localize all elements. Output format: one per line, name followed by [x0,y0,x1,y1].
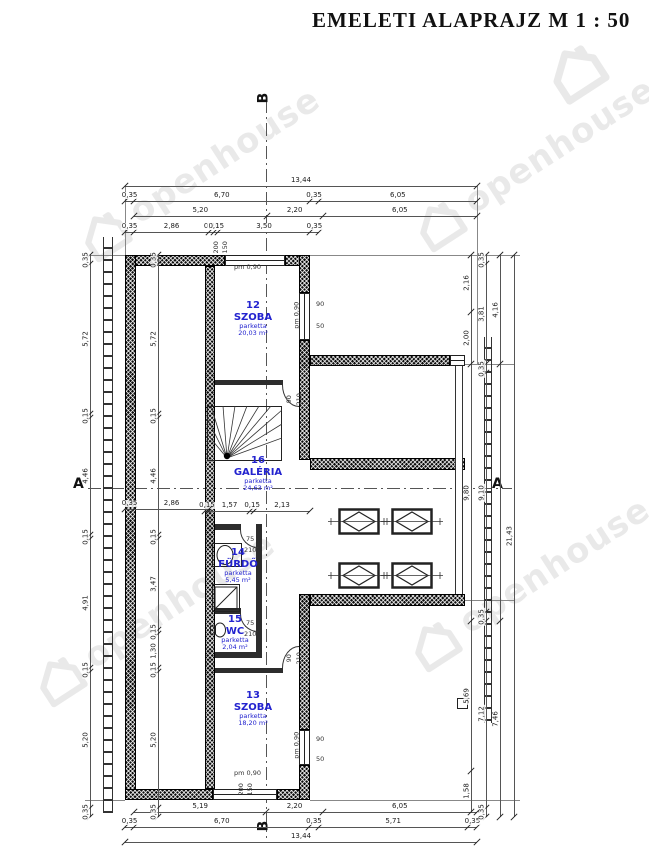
openhouse-watermark: openhouse [406,68,649,257]
sill-label-room13-window: pm 0,90 [293,732,300,759]
house-icon [26,646,94,711]
dim-label: 21,43 [507,525,514,547]
section-marker-b-top: B [255,93,271,104]
dim-line [125,842,477,843]
skylight [380,508,444,540]
dim-label: 2,20 [286,207,304,214]
dim-label: 0,35 [305,818,323,825]
page-title: EMELETI ALAPRAJZ M 1 : 50 [312,8,630,33]
dim-label: 0,15 [151,623,158,641]
size-label-room13-door-w: 90 [286,654,293,662]
dim-label: 0,35 [306,223,324,230]
dim-label: 0,35 [479,804,486,822]
dim-label: 0,35 [479,251,486,269]
size-label-room13-window-h: 50 [316,756,324,763]
dim-tick [306,507,313,514]
window-room12 [299,293,310,340]
dim-label: 2,00 [464,329,471,347]
dim-label: 0,15 [151,661,158,679]
floor-plan: openhouse openhouse openhouse openhouse … [0,0,649,847]
dim-label: 0,35 [121,223,139,230]
dim-line [125,232,319,233]
dim-tick [473,838,480,845]
room-area: 24,63 m² [218,485,298,492]
dim-line [125,509,209,510]
size-label-room13-door-h: 210 [296,652,303,664]
dim-label: 5,69 [464,687,471,705]
size-label-room13-window-w: 90 [316,736,324,743]
window-room13 [299,730,310,765]
section-marker-a-right: A [492,476,503,492]
dim-line [500,255,501,817]
wall-top-left [125,255,225,266]
dim-label: 6,70 [213,818,231,825]
dim-label: 13,44 [290,177,312,184]
room-label-13: 13 SZOBA parketta 18,20 m² [213,690,293,728]
sill-label-top-window: pm 0,90 [234,264,261,271]
dim-label: 2,86 [163,223,181,230]
size-label-top-window-w: 200 [213,241,220,253]
wall-wing-divider [310,458,465,470]
dim-label: 0,35 [479,608,486,626]
dim-label: 6,05 [391,803,409,810]
dim-label: 0,35 [151,804,158,822]
dim-label: 0,15 [83,528,90,546]
dim-label: 5,20 [83,731,90,749]
openhouse-watermark [536,32,616,109]
dim-label: 5,20 [192,207,210,214]
dim-label: 7,12 [479,706,486,724]
dim-label: 5,72 [151,330,158,348]
dim-label: 0,35 [151,251,158,269]
dim-label: 0,15 [243,502,261,509]
wall-right-4 [299,765,310,800]
size-label-room12-window-w: 90 [316,301,324,308]
dim-tick [510,813,517,820]
dim-label: 0,35 [83,804,90,822]
sill-label-room12-window: pm 0,90 [293,302,300,329]
dim-label: 0,15 [83,661,90,679]
room-number: 16 [218,455,298,467]
dim-label: 6,05 [391,207,409,214]
room-number: 13 [213,690,293,702]
wall-bottom-left [125,789,213,800]
wall-bath-top [215,524,241,530]
extension-line [310,800,520,801]
dim-label: 4,16 [493,301,500,319]
room-label-15: 15 WC parketta 2,04 m² [195,614,275,652]
sill-label-bottom-window: pm 0,90 [234,770,261,777]
dim-label: 4,91 [83,594,90,612]
wall-wing-bottom [310,594,465,606]
dim-line [125,827,477,828]
dim-tick [496,813,503,820]
size-label-room12-door-w: 90 [286,395,293,403]
size-label-room12-door-h: 210 [296,393,303,405]
shower-icon [212,584,240,612]
room-area: 20,03 m² [213,330,293,337]
wall-room13-galleria [215,668,283,673]
house-icon [401,611,469,676]
dim-label: 0,35 [305,192,323,199]
wall-right-1 [299,255,310,293]
staircase [207,406,282,461]
dim-label: 4,46 [83,468,90,486]
size-label-bath-door-h: 210 [244,547,256,554]
extension-line [310,255,520,256]
wall-wing-right-thin [455,366,463,594]
wall-wc-bottom [215,652,262,658]
dim-line [134,216,477,217]
room-area: 5,45 m² [198,577,278,584]
size-label-bottom-window-w: 200 [238,783,245,795]
room-number: 15 [195,614,275,626]
room-area: 2,04 m² [195,644,275,651]
size-label-wc-door-w: 75 [246,620,254,627]
dim-label: 5,71 [384,818,402,825]
size-label-bath-door-w: 75 [246,536,254,543]
dim-label: 7,46 [493,710,500,728]
size-label-bottom-window-h: 150 [247,783,254,795]
dim-label: 2,20 [286,803,304,810]
dim-label: 5,72 [83,330,90,348]
dim-label: 3,81 [479,305,486,323]
dim-label: 13,44 [290,833,312,840]
room-label-16: 16 GALÉRIA parketta 24,63 m² [218,455,298,493]
dim-line [125,186,477,187]
dim-line [514,255,515,817]
dim-label: 0,15 [198,502,216,509]
dim-label: 0,35 [121,818,139,825]
room-area: 18,20 m² [213,720,293,727]
room-number: 14 [198,547,278,559]
dim-label: 6,05 [389,192,407,199]
dim-label: 5,19 [191,803,209,810]
size-label-room12-window-h: 50 [316,323,324,330]
dim-label: 0,15 [151,407,158,425]
dim-label: 1,57 [221,502,239,509]
dim-label: 0,35 [121,192,139,199]
dim-label: 2,16 [464,275,471,293]
dim-label: 9,10 [479,484,486,502]
dim-label: 0,15 [207,223,225,230]
skylight [380,562,444,594]
dim-label: 6,70 [213,192,231,199]
wall-left [125,255,136,800]
room-number: 12 [213,300,293,312]
dim-label: 2,13 [273,502,291,509]
section-line-a [88,488,512,489]
room-label-12: 12 SZOBA parketta 20,03 m² [213,300,293,338]
dim-label: 1,58 [464,782,471,800]
dim-line [134,812,477,813]
dim-label: 1,30 [151,642,158,660]
dim-label: 0,35 [479,360,486,378]
dim-label: 4,46 [151,468,158,486]
section-marker-b-bottom: B [255,821,271,832]
room-label-14: 14 FÜRDŐ parketta 5,45 m² [198,547,278,585]
wall-room12-galleria [215,380,283,385]
dim-label: 0,15 [83,407,90,425]
watermark-text: openhouse [457,69,649,222]
dim-line [471,255,472,812]
dim-label: 0,35 [83,251,90,269]
dim-label: 0,35 [121,500,139,507]
size-label-top-window-h: 150 [222,241,229,253]
window-wing-top [450,355,465,366]
dim-line [125,201,477,202]
dim-label: 0,15 [151,528,158,546]
house-icon [536,32,616,109]
size-label-wc-door-h: 210 [244,631,256,638]
eaves-strip-left [103,237,113,813]
dim-label: 3,47 [151,575,158,593]
dim-line [205,511,310,512]
dim-label: 3,50 [255,223,273,230]
dim-line [486,255,487,817]
dim-label: 5,20 [151,731,158,749]
dim-label: 2,86 [163,500,181,507]
dim-label: 9,80 [464,484,471,502]
wall-wing-top [310,355,450,366]
